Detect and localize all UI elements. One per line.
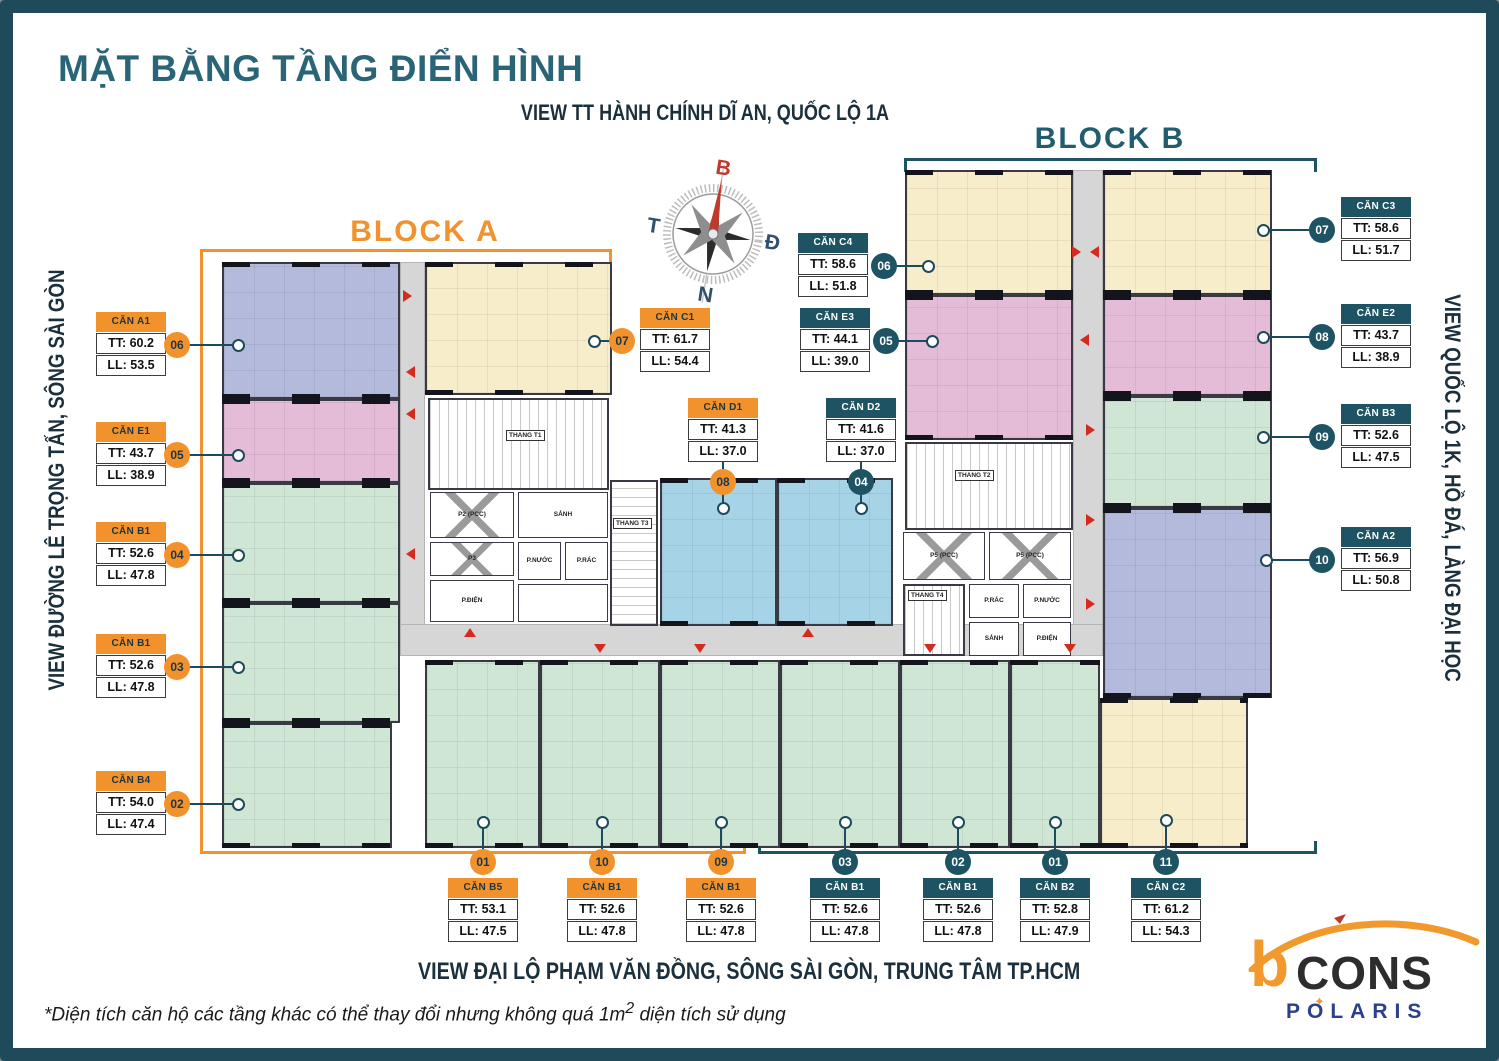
door-arrow [464, 628, 476, 637]
leader-dot [1257, 331, 1270, 344]
block-a-bracket-top [200, 249, 612, 252]
unit-label-ll: LL: 47.5 [1341, 447, 1411, 468]
unit-label-tt: TT: 41.3 [688, 419, 758, 440]
unit-label-ll: LL: 38.9 [96, 465, 166, 486]
unit-label-tt: TT: 61.2 [1131, 899, 1201, 920]
unit-number-badge: 07 [609, 328, 635, 354]
room-lobby-a: SẢNH [518, 492, 608, 538]
corridor-block-b [1073, 170, 1103, 656]
door-arrow [403, 290, 412, 302]
unit-label-name: CĂN E3 [800, 308, 870, 328]
leader-dot [926, 335, 939, 348]
leader-dot [232, 661, 245, 674]
unit-number-badge: 10 [1309, 547, 1335, 573]
unit-label: CĂN B1TT: 52.6LL: 47.8 [567, 878, 637, 942]
unit-label: CĂN B2TT: 52.8LL: 47.9 [1020, 878, 1090, 942]
stair-t1-label: THANG T1 [506, 430, 545, 441]
logo-subbrand-text: POLARIS [1286, 1000, 1428, 1024]
unit-label-tt: TT: 53.1 [448, 899, 518, 920]
unit-number-badge: 03 [164, 654, 190, 680]
unit-number-badge: 04 [848, 469, 874, 495]
unit-label: CĂN A2TT: 56.9LL: 50.8 [1341, 527, 1411, 591]
compass-east-letter: Đ [763, 230, 782, 255]
door-arrow [1086, 424, 1095, 436]
leader-dot [922, 260, 935, 273]
view-top-text: VIEW TT HÀNH CHÍNH DĨ AN, QUỐC LỘ 1A [500, 100, 910, 126]
unit-label-ll: LL: 47.5 [448, 921, 518, 942]
unit-label: CĂN E2TT: 43.7LL: 38.9 [1341, 304, 1411, 368]
room-lobby-b: SẢNH [969, 622, 1019, 656]
unit-label-name: CĂN C2 [1131, 878, 1201, 898]
unit-a2-shape [1103, 508, 1272, 698]
footnote-sup: 2 [625, 1000, 634, 1017]
door-arrow [406, 408, 415, 420]
logo-star-icon: ✦ [1314, 994, 1325, 1010]
unit-label-tt: TT: 43.7 [96, 443, 166, 464]
leader-dot [839, 816, 852, 829]
footnote-text: *Diện tích căn hộ các tầng khác có thể t… [44, 1004, 625, 1025]
lift-b1: P5 (PCC) [903, 532, 985, 580]
leader-dot [232, 339, 245, 352]
unit-label-ll: LL: 37.0 [688, 441, 758, 462]
unit-b3-shape [1103, 396, 1272, 508]
unit-label-name: CĂN C1 [640, 308, 710, 328]
unit-label-ll: LL: 50.8 [1341, 570, 1411, 591]
unit-label-ll: LL: 54.4 [640, 351, 710, 372]
unit-label-tt: TT: 56.9 [1341, 548, 1411, 569]
unit-label-name: CĂN D2 [826, 398, 896, 418]
unit-label-name: CĂN D1 [688, 398, 758, 418]
unit-label: CĂN B1TT: 52.6LL: 47.8 [923, 878, 993, 942]
lift-p3: P3 [430, 542, 514, 576]
unit-label-tt: TT: 52.6 [923, 899, 993, 920]
block-a-bracket-left [200, 249, 203, 853]
compass-north-letter: B [714, 156, 733, 181]
leader-dot [232, 449, 245, 462]
room-water-a: P.NƯỚC [518, 542, 561, 580]
unit-label-tt: TT: 52.6 [96, 655, 166, 676]
door-arrow [694, 644, 706, 653]
compass-rose: B Đ T N [643, 156, 783, 306]
unit-label: CĂN D1TT: 41.3LL: 37.0 [688, 398, 758, 462]
logo-brand-text: CONS [1296, 946, 1433, 1000]
block-a-bracket-tick [609, 249, 612, 263]
block-b-label: BLOCK B [985, 122, 1235, 156]
unit-label-ll: LL: 47.8 [810, 921, 880, 942]
unit-d2-shape [777, 478, 893, 626]
page-title: MẶT BẰNG TẦNG ĐIỂN HÌNH [58, 48, 583, 90]
room-trash-a: P.RÁC [565, 542, 608, 580]
logo-b-mark: b [1250, 932, 1289, 996]
door-arrow [924, 644, 936, 653]
unit-label: CĂN C2TT: 61.2LL: 54.3 [1131, 878, 1201, 942]
room-blank-a [518, 584, 608, 622]
door-arrow [1086, 514, 1095, 526]
unit-label-name: CĂN E1 [96, 422, 166, 442]
room-elec-a: P.ĐIỆN [430, 580, 514, 622]
unit-number-badge: 03 [832, 849, 858, 875]
door-arrow [406, 548, 415, 560]
leader-dot [1260, 554, 1273, 567]
lift-b2: P5 (PCC) [989, 532, 1071, 580]
unit-label-ll: LL: 51.8 [798, 276, 868, 297]
leader-dot [1049, 816, 1062, 829]
leader-dot [232, 549, 245, 562]
unit-label-name: CĂN B1 [810, 878, 880, 898]
unit-label: CĂN E1TT: 43.7LL: 38.9 [96, 422, 166, 486]
door-arrow [1086, 598, 1095, 610]
unit-number-badge: 02 [164, 791, 190, 817]
unit-label-tt: TT: 54.0 [96, 792, 166, 813]
unit-e1-shape [222, 399, 400, 483]
unit-label-name: CĂN B5 [448, 878, 518, 898]
lift-a: P2 (PCC) [430, 492, 514, 538]
view-left-text: VIEW ĐƯỜNG LÊ TRỌNG TẤN, SÔNG SÀI GÒN [44, 269, 70, 690]
unit-label-tt: TT: 58.6 [1341, 218, 1411, 239]
stair-t2 [905, 442, 1073, 530]
unit-number-badge: 02 [945, 849, 971, 875]
stair-t4-label: THANG T4 [908, 590, 947, 601]
unit-label-tt: TT: 60.2 [96, 333, 166, 354]
unit-label: CĂN B1TT: 52.6LL: 47.8 [96, 634, 166, 698]
door-arrow [406, 366, 415, 378]
leader-dot [588, 335, 601, 348]
unit-number-badge: 01 [1042, 849, 1068, 875]
unit-number-badge: 01 [470, 849, 496, 875]
unit-c4-shape [905, 170, 1073, 295]
unit-a1-shape [222, 262, 400, 399]
unit-label: CĂN C3TT: 58.6LL: 51.7 [1341, 197, 1411, 261]
unit-label-ll: LL: 47.8 [567, 921, 637, 942]
unit-label: CĂN B5TT: 53.1LL: 47.5 [448, 878, 518, 942]
door-arrow [802, 628, 814, 637]
unit-label: CĂN B1TT: 52.6LL: 47.8 [810, 878, 880, 942]
leader-dot [715, 816, 728, 829]
stair-t1 [428, 398, 609, 490]
room-trash-b: P.RÁC [969, 584, 1019, 618]
unit-number-badge: 11 [1153, 849, 1179, 875]
unit-number-badge: 06 [871, 253, 897, 279]
unit-label-name: CĂN A1 [96, 312, 166, 332]
leader-dot [477, 816, 490, 829]
door-arrow [1072, 246, 1081, 258]
unit-number-badge: 05 [873, 328, 899, 354]
unit-label-tt: TT: 52.8 [1020, 899, 1090, 920]
leader-dot [1257, 224, 1270, 237]
unit-label-tt: TT: 52.6 [1341, 425, 1411, 446]
unit-label-tt: TT: 58.6 [798, 254, 868, 275]
stair-t3-label: THANG T3 [613, 518, 652, 529]
footnote-tail: diện tích sử dụng [634, 1004, 785, 1025]
stair-t2-label: THANG T2 [955, 470, 994, 481]
unit-number-badge: 05 [164, 442, 190, 468]
unit-number-badge: 09 [708, 849, 734, 875]
bcons-polaris-logo: b CONS POLARIS ✦ [1238, 918, 1483, 1030]
unit-c2-shape [1100, 698, 1248, 848]
unit-number-badge: 10 [589, 849, 615, 875]
unit-label-tt: TT: 43.7 [1341, 325, 1411, 346]
door-arrow [1064, 644, 1076, 653]
unit-e3-shape [905, 295, 1073, 440]
leader-dot [717, 502, 730, 515]
unit-label-tt: TT: 52.6 [810, 899, 880, 920]
unit-label-ll: LL: 47.8 [686, 921, 756, 942]
compass-west-letter: T [645, 214, 661, 239]
unit-number-badge: 06 [164, 332, 190, 358]
view-bottom-text: VIEW ĐẠI LỘ PHẠM VĂN ĐỒNG, SÔNG SÀI GÒN,… [418, 958, 992, 986]
unit-label: CĂN B3TT: 52.6LL: 47.5 [1341, 404, 1411, 468]
unit-c3-shape [1103, 170, 1272, 295]
unit-label-ll: LL: 51.7 [1341, 240, 1411, 261]
unit-label-name: CĂN B1 [923, 878, 993, 898]
unit-label-tt: TT: 52.6 [686, 899, 756, 920]
unit-label-tt: TT: 52.6 [96, 543, 166, 564]
leader-dot [232, 798, 245, 811]
view-right-text: VIEW QUỐC LỘ 1K, HỒ ĐÁ, LÀNG ĐẠI HỌC [1439, 294, 1465, 682]
unit-label-tt: TT: 52.6 [567, 899, 637, 920]
unit-label: CĂN B4TT: 54.0LL: 47.4 [96, 771, 166, 835]
unit-b1a-shape [222, 483, 400, 603]
block-b-bracket-tick4 [1314, 841, 1317, 854]
room-water-b: P.NƯỚC [1023, 584, 1071, 618]
block-b-bracket-top [904, 158, 1317, 161]
unit-label-name: CĂN A2 [1341, 527, 1411, 547]
unit-label: CĂN B1TT: 52.6LL: 47.8 [686, 878, 756, 942]
unit-label-name: CĂN B3 [1341, 404, 1411, 424]
unit-label-name: CĂN B1 [567, 878, 637, 898]
unit-label-name: CĂN E2 [1341, 304, 1411, 324]
leader-dot [1257, 431, 1270, 444]
unit-label-ll: LL: 38.9 [1341, 347, 1411, 368]
door-arrow [594, 644, 606, 653]
leader-dot [855, 502, 868, 515]
unit-number-badge: 07 [1309, 217, 1335, 243]
unit-number-badge: 08 [1309, 324, 1335, 350]
unit-number-badge: 04 [164, 542, 190, 568]
unit-label-ll: LL: 37.0 [826, 441, 896, 462]
unit-b1b-shape [222, 603, 400, 723]
block-b-bracket-tick2 [1314, 158, 1317, 172]
unit-label-name: CĂN B2 [1020, 878, 1090, 898]
footnote: *Diện tích căn hộ các tầng khác có thể t… [44, 1000, 786, 1026]
unit-label-ll: LL: 47.9 [1020, 921, 1090, 942]
unit-label-ll: LL: 47.8 [96, 565, 166, 586]
unit-label: CĂN E3TT: 44.1LL: 39.0 [800, 308, 870, 372]
stair-t3 [610, 480, 658, 626]
unit-label-name: CĂN C3 [1341, 197, 1411, 217]
unit-label-ll: LL: 39.0 [800, 351, 870, 372]
unit-c1-shape [425, 262, 612, 395]
unit-label: CĂN D2TT: 41.6LL: 37.0 [826, 398, 896, 462]
door-arrow [1080, 334, 1089, 346]
unit-label-tt: TT: 61.7 [640, 329, 710, 350]
unit-label: CĂN B1TT: 52.6LL: 47.8 [96, 522, 166, 586]
unit-number-badge: 09 [1309, 424, 1335, 450]
unit-label-ll: LL: 47.8 [96, 677, 166, 698]
unit-b4-shape [222, 723, 392, 848]
block-a-label: BLOCK A [300, 215, 550, 249]
unit-label-ll: LL: 47.4 [96, 814, 166, 835]
unit-label-tt: TT: 44.1 [800, 329, 870, 350]
leader-dot [1160, 814, 1173, 827]
unit-d1-shape [660, 478, 777, 626]
compass-south-letter: N [696, 283, 715, 306]
leader-dot [596, 816, 609, 829]
unit-label: CĂN C1TT: 61.7LL: 54.4 [640, 308, 710, 372]
unit-label-name: CĂN B1 [96, 634, 166, 654]
unit-label-name: CĂN C4 [798, 233, 868, 253]
floorplan-poster: MẶT BẰNG TẦNG ĐIỂN HÌNH VIEW TT HÀNH CHÍ… [0, 0, 1499, 1061]
door-arrow [1090, 246, 1099, 258]
leader-dot [952, 816, 965, 829]
unit-number-badge: 08 [710, 469, 736, 495]
unit-label-ll: LL: 54.3 [1131, 921, 1201, 942]
unit-label-name: CĂN B1 [686, 878, 756, 898]
unit-label-ll: LL: 47.8 [923, 921, 993, 942]
corridor-block-a [400, 262, 425, 656]
unit-e2-shape [1103, 295, 1272, 396]
unit-label-ll: LL: 53.5 [96, 355, 166, 376]
unit-label-tt: TT: 41.6 [826, 419, 896, 440]
unit-label: CĂN C4TT: 58.6LL: 51.8 [798, 233, 868, 297]
unit-label-name: CĂN B1 [96, 522, 166, 542]
unit-label-name: CĂN B4 [96, 771, 166, 791]
unit-label: CĂN A1TT: 60.2LL: 53.5 [96, 312, 166, 376]
